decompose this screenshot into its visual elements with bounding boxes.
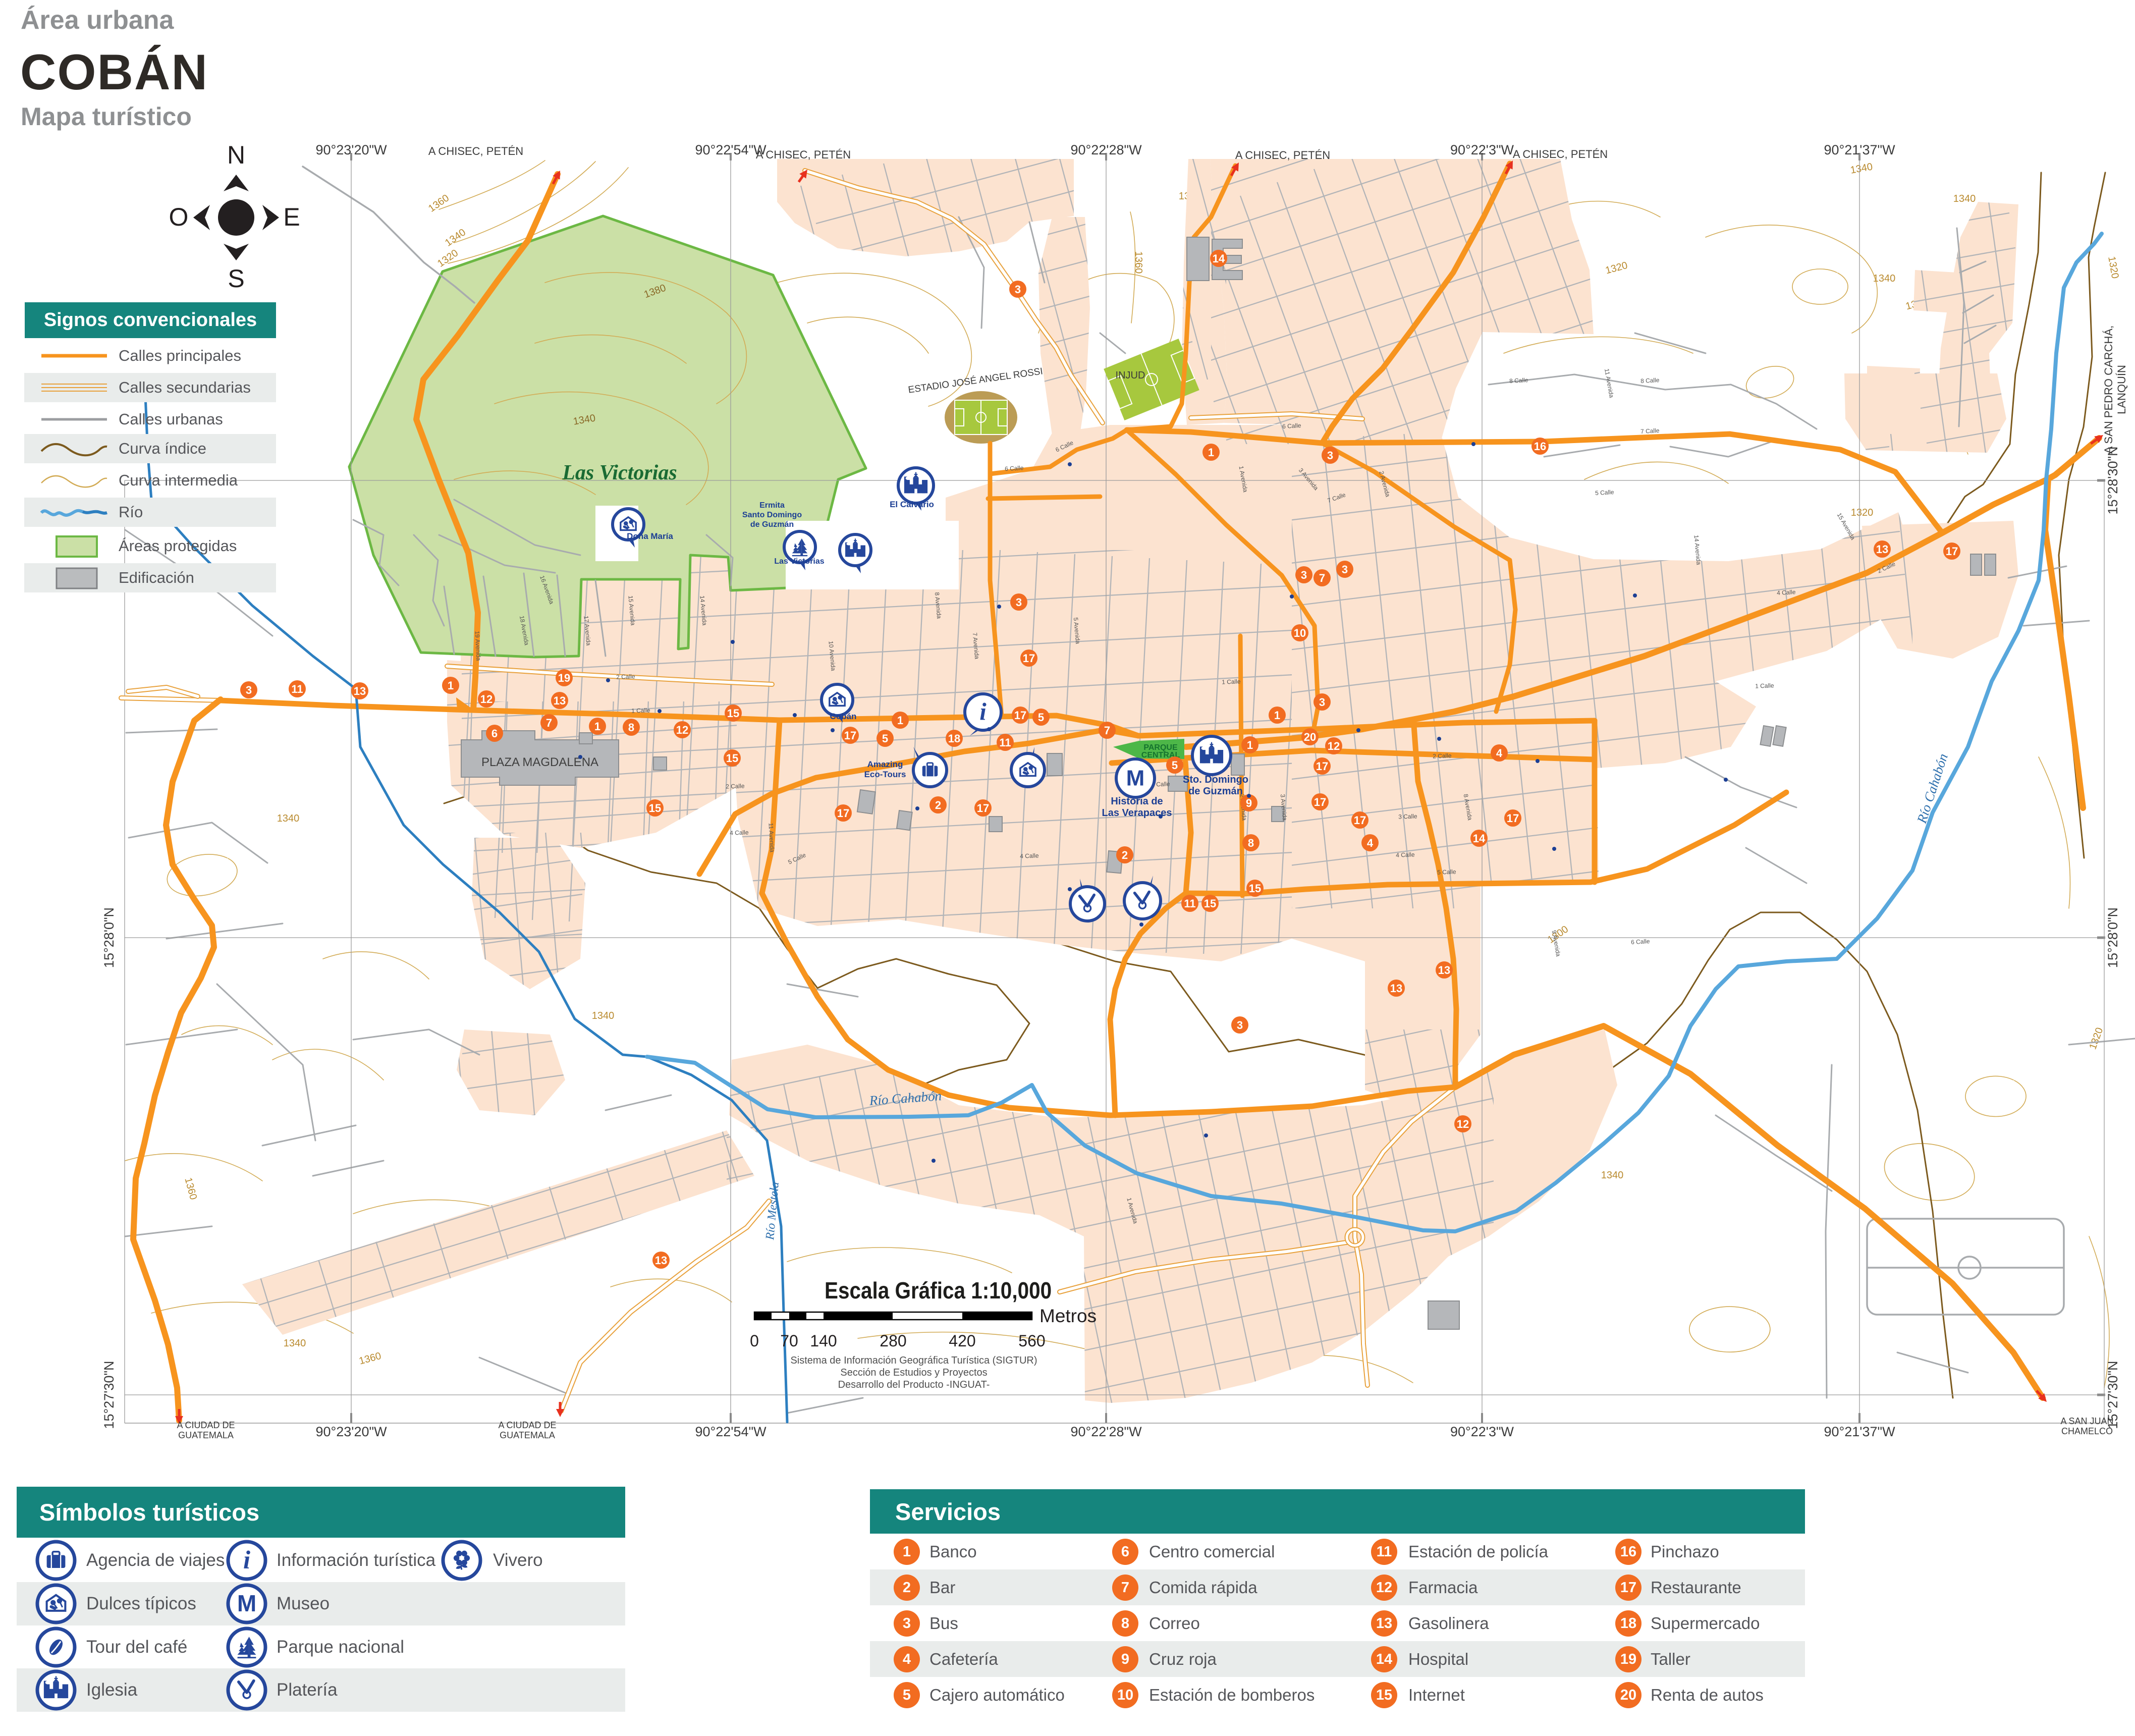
svg-text:7: 7 <box>1104 724 1110 737</box>
svg-text:560: 560 <box>1018 1332 1045 1350</box>
svg-text:Las Victorias: Las Victorias <box>562 461 677 484</box>
svg-text:E: E <box>283 203 300 231</box>
svg-text:2 Calle: 2 Calle <box>616 673 635 680</box>
svg-text:3: 3 <box>246 684 252 696</box>
svg-text:90°22'54"W: 90°22'54"W <box>695 1424 767 1439</box>
svg-text:13: 13 <box>554 694 566 707</box>
svg-text:6: 6 <box>491 727 498 740</box>
svg-text:Santo Domingo: Santo Domingo <box>742 511 802 519</box>
svg-text:4 Calle: 4 Calle <box>1396 851 1415 858</box>
svg-text:Eco-Tours: Eco-Tours <box>864 770 906 779</box>
svg-text:3: 3 <box>1301 569 1307 581</box>
svg-text:11: 11 <box>291 683 303 695</box>
svg-text:1340: 1340 <box>1601 1170 1624 1181</box>
svg-text:280: 280 <box>880 1332 906 1350</box>
svg-text:M: M <box>237 1590 256 1616</box>
svg-text:17: 17 <box>1023 652 1035 665</box>
svg-text:8: 8 <box>628 721 634 734</box>
svg-text:A CIUDAD DE: A CIUDAD DE <box>177 1420 235 1430</box>
svg-text:S: S <box>228 264 244 293</box>
svg-text:17: 17 <box>1314 796 1326 808</box>
svg-text:Sto. Domingo: Sto. Domingo <box>1183 774 1248 785</box>
svg-text:15: 15 <box>1204 897 1216 910</box>
svg-text:15: 15 <box>726 752 738 765</box>
svg-text:4: 4 <box>1367 837 1374 849</box>
svg-text:GUATEMALA: GUATEMALA <box>178 1430 234 1440</box>
svg-text:A CHISEC, PETÉN: A CHISEC, PETÉN <box>756 148 851 161</box>
svg-text:420: 420 <box>949 1332 975 1350</box>
svg-text:3: 3 <box>1237 1019 1243 1032</box>
svg-text:17: 17 <box>837 807 849 820</box>
svg-text:1: 1 <box>594 720 600 733</box>
svg-text:A CHISEC, PETÉN: A CHISEC, PETÉN <box>1235 149 1330 161</box>
svg-text:13: 13 <box>655 1254 667 1267</box>
svg-text:19: 19 <box>558 672 570 684</box>
svg-text:2 Calle: 2 Calle <box>726 782 745 790</box>
svg-text:Las Victorias: Las Victorias <box>774 557 824 566</box>
svg-text:4 Calle: 4 Calle <box>1020 852 1039 859</box>
svg-text:13: 13 <box>1390 982 1402 995</box>
svg-text:140: 140 <box>810 1332 837 1350</box>
svg-text:17: 17 <box>1316 760 1328 773</box>
svg-text:15°28'0"N: 15°28'0"N <box>101 907 117 968</box>
svg-text:1 Calle: 1 Calle <box>1755 682 1774 689</box>
svg-text:3: 3 <box>1319 696 1325 709</box>
svg-text:A CHISEC, PETÉN: A CHISEC, PETÉN <box>1513 148 1608 160</box>
svg-text:90°22'3"W: 90°22'3"W <box>1450 142 1514 157</box>
svg-text:4 Calle: 4 Calle <box>1777 588 1796 596</box>
svg-text:17: 17 <box>1507 812 1519 825</box>
svg-text:5: 5 <box>1038 711 1044 724</box>
svg-text:5: 5 <box>1172 759 1178 772</box>
svg-text:Amazing: Amazing <box>867 759 903 769</box>
svg-text:15: 15 <box>649 802 661 815</box>
svg-text:1: 1 <box>1208 446 1214 459</box>
svg-text:5 Calle: 5 Calle <box>1595 489 1614 497</box>
svg-text:16: 16 <box>1534 440 1546 453</box>
svg-text:15: 15 <box>727 707 739 720</box>
svg-text:90°22'3"W: 90°22'3"W <box>1450 1424 1514 1439</box>
svg-text:A SAN JUAN: A SAN JUAN <box>2060 1416 2113 1426</box>
svg-text:M: M <box>1126 766 1145 790</box>
svg-text:A CIUDAD DE: A CIUDAD DE <box>498 1420 556 1430</box>
svg-text:90°21'37"W: 90°21'37"W <box>1824 1424 1895 1439</box>
svg-text:10: 10 <box>1294 627 1306 639</box>
svg-text:11: 11 <box>1184 897 1195 910</box>
svg-text:90°22'28"W: 90°22'28"W <box>1070 1424 1142 1439</box>
svg-text:de Guzmán: de Guzmán <box>750 520 794 529</box>
svg-text:90°23'20"W: 90°23'20"W <box>315 1424 387 1439</box>
svg-text:2: 2 <box>935 799 941 811</box>
svg-text:15: 15 <box>1249 882 1261 895</box>
svg-text:2: 2 <box>1122 849 1128 861</box>
svg-text:5 Calle: 5 Calle <box>1437 868 1456 876</box>
svg-text:3: 3 <box>1327 449 1333 462</box>
svg-text:A CHISEC, PETÉN: A CHISEC, PETÉN <box>428 145 523 157</box>
svg-text:i: i <box>979 698 987 725</box>
svg-text:12: 12 <box>1328 740 1340 752</box>
svg-text:1: 1 <box>1247 739 1253 751</box>
svg-text:1340: 1340 <box>1873 273 1896 284</box>
svg-text:14: 14 <box>1473 832 1486 845</box>
svg-text:11: 11 <box>999 736 1011 749</box>
svg-text:15°27'30"N: 15°27'30"N <box>101 1361 117 1429</box>
svg-text:1340: 1340 <box>592 1010 615 1021</box>
svg-text:1: 1 <box>897 714 903 727</box>
svg-text:9: 9 <box>1246 797 1252 809</box>
svg-text:Ermita: Ermita <box>759 501 785 510</box>
svg-text:1 Calle: 1 Calle <box>631 707 650 714</box>
svg-text:3: 3 <box>1016 596 1022 609</box>
svg-text:GUATEMALA: GUATEMALA <box>500 1430 555 1440</box>
svg-text:14: 14 <box>1213 252 1225 265</box>
svg-text:1 Calle: 1 Calle <box>1222 678 1241 685</box>
svg-text:18: 18 <box>948 732 960 745</box>
svg-text:3: 3 <box>1342 563 1348 576</box>
svg-text:6 Calle: 6 Calle <box>1631 938 1650 946</box>
svg-text:13: 13 <box>1876 543 1888 556</box>
svg-text:5: 5 <box>882 732 888 745</box>
svg-text:Doña María: Doña María <box>627 531 673 541</box>
svg-text:17: 17 <box>1354 814 1366 827</box>
svg-text:Metros: Metros <box>1039 1307 1097 1326</box>
svg-text:12: 12 <box>1457 1118 1469 1130</box>
svg-text:3: 3 <box>1015 283 1021 296</box>
svg-text:O: O <box>169 203 189 231</box>
svg-text:17: 17 <box>844 729 856 742</box>
svg-text:2 Calle: 2 Calle <box>1433 752 1452 759</box>
svg-text:CHAMELCO: CHAMELCO <box>2061 1426 2113 1436</box>
svg-text:17: 17 <box>1014 709 1026 722</box>
svg-text:i: i <box>243 1546 250 1574</box>
svg-text:1: 1 <box>1274 709 1280 722</box>
svg-text:1320: 1320 <box>1851 507 1874 518</box>
svg-text:15°28'30"N: 15°28'30"N <box>2105 446 2120 514</box>
svg-text:1340: 1340 <box>284 1338 306 1349</box>
svg-text:15°28'0"N: 15°28'0"N <box>2105 907 2120 968</box>
svg-text:1340: 1340 <box>277 813 300 824</box>
svg-text:0: 0 <box>750 1332 759 1350</box>
svg-text:7: 7 <box>1319 572 1325 584</box>
svg-text:13: 13 <box>1438 964 1450 976</box>
svg-text:12: 12 <box>480 693 492 706</box>
svg-text:17: 17 <box>1946 545 1958 558</box>
svg-text:12: 12 <box>676 724 688 736</box>
svg-text:6 Calle: 6 Calle <box>1005 464 1024 472</box>
svg-text:90°22'28"W: 90°22'28"W <box>1070 142 1142 157</box>
svg-text:6 Calle: 6 Calle <box>1282 422 1301 430</box>
svg-text:El Calvario: El Calvario <box>890 500 934 509</box>
svg-text:90°21'37"W: 90°21'37"W <box>1824 142 1895 157</box>
svg-text:N: N <box>227 141 245 169</box>
svg-text:Historia de: Historia de <box>1111 796 1163 807</box>
svg-text:4: 4 <box>1496 747 1503 759</box>
svg-text:8: 8 <box>1248 837 1254 849</box>
svg-text:7 Calle: 7 Calle <box>1640 427 1660 435</box>
svg-text:17: 17 <box>977 802 989 815</box>
svg-text:7: 7 <box>546 717 552 729</box>
svg-text:1360: 1360 <box>1133 251 1144 274</box>
svg-text:1: 1 <box>448 679 454 692</box>
svg-text:70: 70 <box>780 1332 798 1350</box>
svg-text:de Guzmán: de Guzmán <box>1188 786 1243 797</box>
svg-text:Cobán: Cobán <box>830 712 857 721</box>
svg-text:4 Calle: 4 Calle <box>730 829 749 836</box>
svg-text:1340: 1340 <box>1953 193 1976 204</box>
svg-text:13: 13 <box>354 685 366 697</box>
svg-text:3 Calle: 3 Calle <box>1398 812 1417 820</box>
svg-text:20: 20 <box>1304 731 1316 743</box>
